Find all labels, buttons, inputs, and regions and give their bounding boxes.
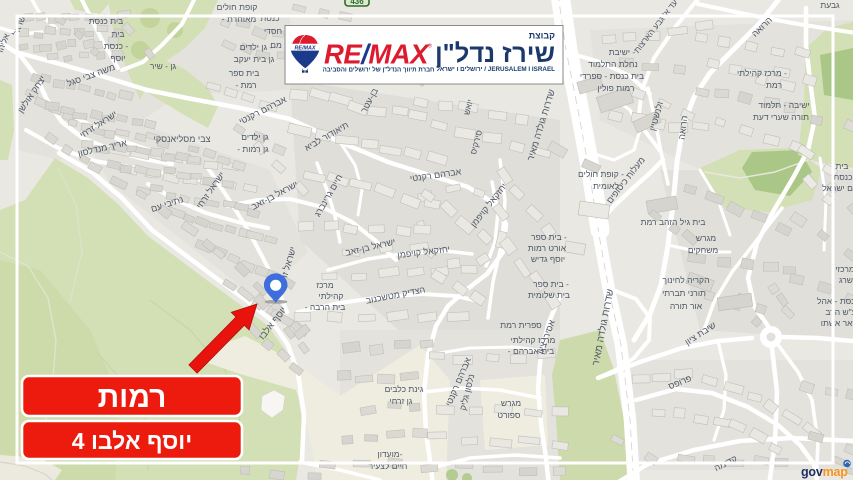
svg-text:- בית אברהם: - בית אברהם xyxy=(508,346,554,356)
svg-text:ספורט: ספורט xyxy=(498,410,521,420)
svg-text:RE/MAX: RE/MAX xyxy=(324,39,430,70)
svg-text:מרכז: מרכז xyxy=(316,280,333,290)
svg-text:בית: בית xyxy=(112,29,125,39)
svg-text:שירז נדל"ן: שירז נדל"ן xyxy=(435,40,555,68)
svg-text:גן - שיר: גן - שיר xyxy=(150,61,177,71)
svg-text:דאר אשתו: דאר אשתו xyxy=(821,318,853,328)
svg-text:בית כנסת - ספרדי: בית כנסת - ספרדי xyxy=(580,71,644,81)
svg-text:RE/MAX: RE/MAX xyxy=(295,45,316,51)
svg-text:כנסת -: כנסת - xyxy=(104,41,129,51)
svg-text:אור תורה: אור תורה xyxy=(670,301,703,311)
svg-text:ספרית רמת: ספרית רמת xyxy=(500,320,542,330)
svg-text:יוסף אלבו 4: יוסף אלבו 4 xyxy=(72,428,192,454)
svg-text:קופת חולים -: קופת חולים - xyxy=(578,169,624,179)
svg-text:מגרש: מגרש xyxy=(696,233,716,243)
svg-text:מרכז קהילתי: מרכז קהילתי xyxy=(511,335,556,345)
svg-text:גן ילדים: גן ילדים xyxy=(241,132,269,142)
svg-text:קופת חולים: קופת חולים xyxy=(217,2,258,12)
svg-text:רמות פולין: רמות פולין xyxy=(598,83,635,93)
svg-text:בית שלומית: בית שלומית xyxy=(528,290,570,300)
svg-text:®: ® xyxy=(428,43,432,50)
svg-text:קהילתי: קהילתי xyxy=(318,291,343,301)
svg-text:גן בית יעקב: גן בית יעקב xyxy=(234,54,275,64)
svg-text:בית ספר -: בית ספר - xyxy=(533,279,569,289)
svg-text:שרג: שרג xyxy=(839,275,853,285)
svg-text:גן ילדים -: גן ילדים - xyxy=(240,42,273,52)
svg-text:גן זרחי: גן זרחי xyxy=(389,396,412,406)
svg-text:מגרש: מגרש xyxy=(501,398,521,408)
svg-text:רמת: רמת xyxy=(766,80,782,90)
svg-text:בית: בית xyxy=(836,161,849,171)
svg-text:יוסף גדיש: יוסף גדיש xyxy=(531,254,565,264)
svg-text:עם ישראל: עם ישראל xyxy=(822,183,853,193)
svg-text:מועדון-: מועדון- xyxy=(378,449,403,459)
svg-text:גינת כלבים: גינת כלבים xyxy=(385,384,424,394)
svg-text:אורט רמות: אורט רמות xyxy=(528,243,567,253)
svg-text:מרכזי: מרכזי xyxy=(835,264,853,274)
svg-text:גבעת: גבעת xyxy=(820,0,840,10)
svg-text:- גן רמות: - גן רמות xyxy=(237,144,269,154)
svg-text:תורה שערי דעת: תורה שערי דעת xyxy=(753,112,809,122)
svg-text:- רמת: - רמת xyxy=(235,80,256,90)
svg-text:חסדי: חסדי xyxy=(264,26,282,36)
svg-text:ירושלים ו ישראל / JERUSALEM: ירושלים ו ישראל / JERUSALEM I ISRAEL xyxy=(436,65,555,73)
svg-text:- בית הרבה: - בית הרבה xyxy=(305,302,346,312)
svg-text:כנסת - אהל: כנסת - אהל xyxy=(817,296,853,306)
svg-text:כנסת: כנסת xyxy=(833,172,852,182)
svg-text:קבוצת: קבוצת xyxy=(529,31,555,41)
svg-text:436: 436 xyxy=(350,0,364,6)
svg-text:בית ספר -: בית ספר - xyxy=(531,232,567,242)
svg-text:govmap: govmap xyxy=(801,465,848,479)
svg-text:ע"ש הרב: ע"ש הרב xyxy=(825,307,853,317)
svg-text:חברת תיווך הנדל"ן של ירושלים ו: חברת תיווך הנדל"ן של ירושלים והסביבה xyxy=(323,66,435,74)
svg-text:משחקים: משחקים xyxy=(688,245,719,255)
svg-text:רמות: רמות xyxy=(98,381,167,414)
svg-text:בית ספר: בית ספר xyxy=(229,68,260,78)
svg-text:הקריה לחינוך: הקריה לחינוך xyxy=(663,275,710,285)
svg-text:בית גיל הזהב רמת: בית גיל הזהב רמת xyxy=(641,217,706,227)
svg-text:ישיבה - תלמוד: ישיבה - תלמוד xyxy=(758,100,809,110)
svg-text:צבי מסליאנסקי: צבי מסליאנסקי xyxy=(153,134,210,144)
svg-text:מרכז קהילתי -: מרכז קהילתי - xyxy=(737,68,787,78)
svg-text:תורני תברתי: תורני תברתי xyxy=(662,288,706,298)
svg-text:נחלת התלמוד: נחלת התלמוד xyxy=(588,59,638,69)
